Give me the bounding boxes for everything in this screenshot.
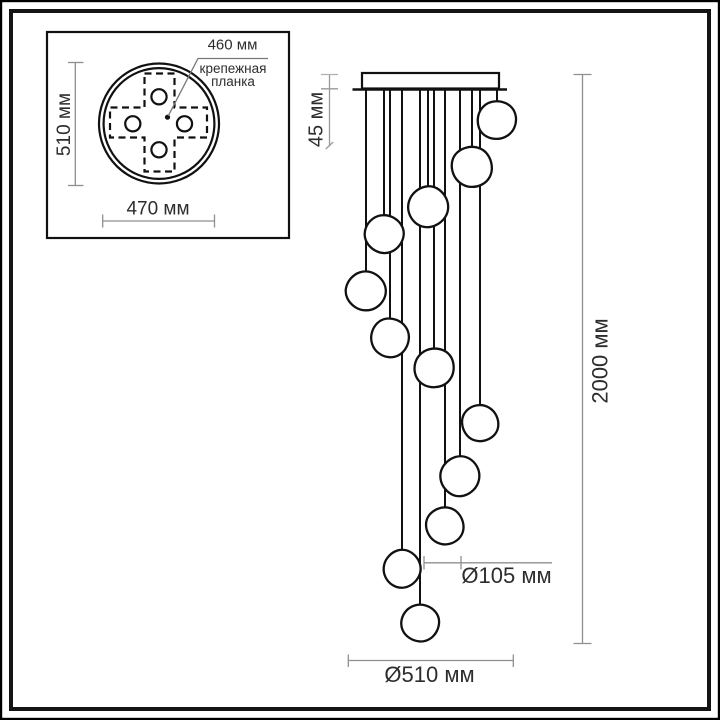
technical-drawing: 460 мм крепежная планка 510 мм 470 мм bbox=[0, 0, 720, 720]
screenshot-canvas: 460 мм крепежная планка 510 мм 470 мм bbox=[0, 0, 720, 720]
pendant-globe bbox=[446, 141, 497, 192]
callout-dot bbox=[165, 115, 170, 120]
pendant-globe bbox=[432, 449, 487, 504]
ceiling-plate bbox=[362, 73, 499, 89]
inset-top-view: 460 мм крепежная планка 510 мм 470 мм bbox=[47, 32, 289, 238]
dim-460-label: 460 мм bbox=[208, 37, 258, 54]
dim-45-label: 45 мм bbox=[306, 92, 328, 147]
main-side-view: 45 мм 2000 мм Ø105 мм Ø510 мм bbox=[306, 73, 613, 687]
pendant-globe bbox=[367, 315, 413, 362]
dim-inset-470-label: 470 мм bbox=[126, 199, 189, 220]
pendant-globe bbox=[478, 101, 516, 139]
pendant-globe bbox=[339, 264, 393, 318]
mounting-plate-label-line2: планка bbox=[211, 74, 255, 89]
pendant-globe bbox=[400, 179, 456, 235]
dim-2000-label: 2000 мм bbox=[588, 318, 613, 403]
dim-inset-510-label: 510 мм bbox=[54, 93, 75, 156]
pendant-globe bbox=[456, 399, 504, 447]
pendant-globe bbox=[420, 501, 470, 552]
dim-105-label: Ø105 мм bbox=[461, 563, 551, 588]
pendant-globe bbox=[396, 599, 444, 646]
dim-510-label: Ø510 мм bbox=[384, 662, 474, 687]
